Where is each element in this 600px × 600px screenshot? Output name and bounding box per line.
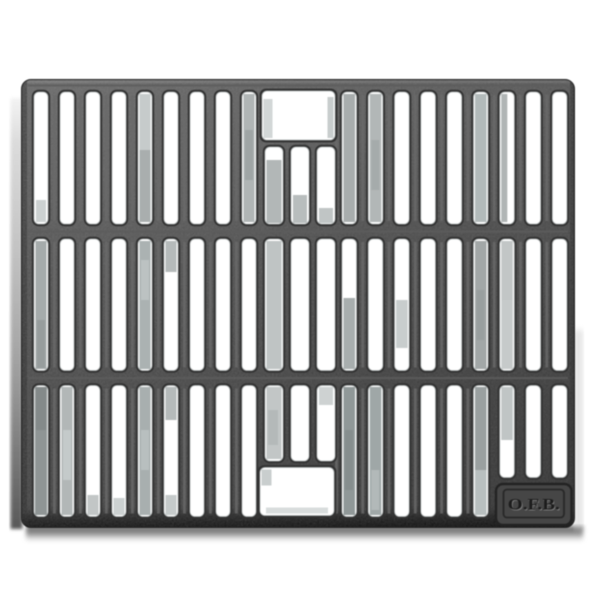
svg-text:O.F.B.: O.F.B. — [508, 497, 560, 514]
